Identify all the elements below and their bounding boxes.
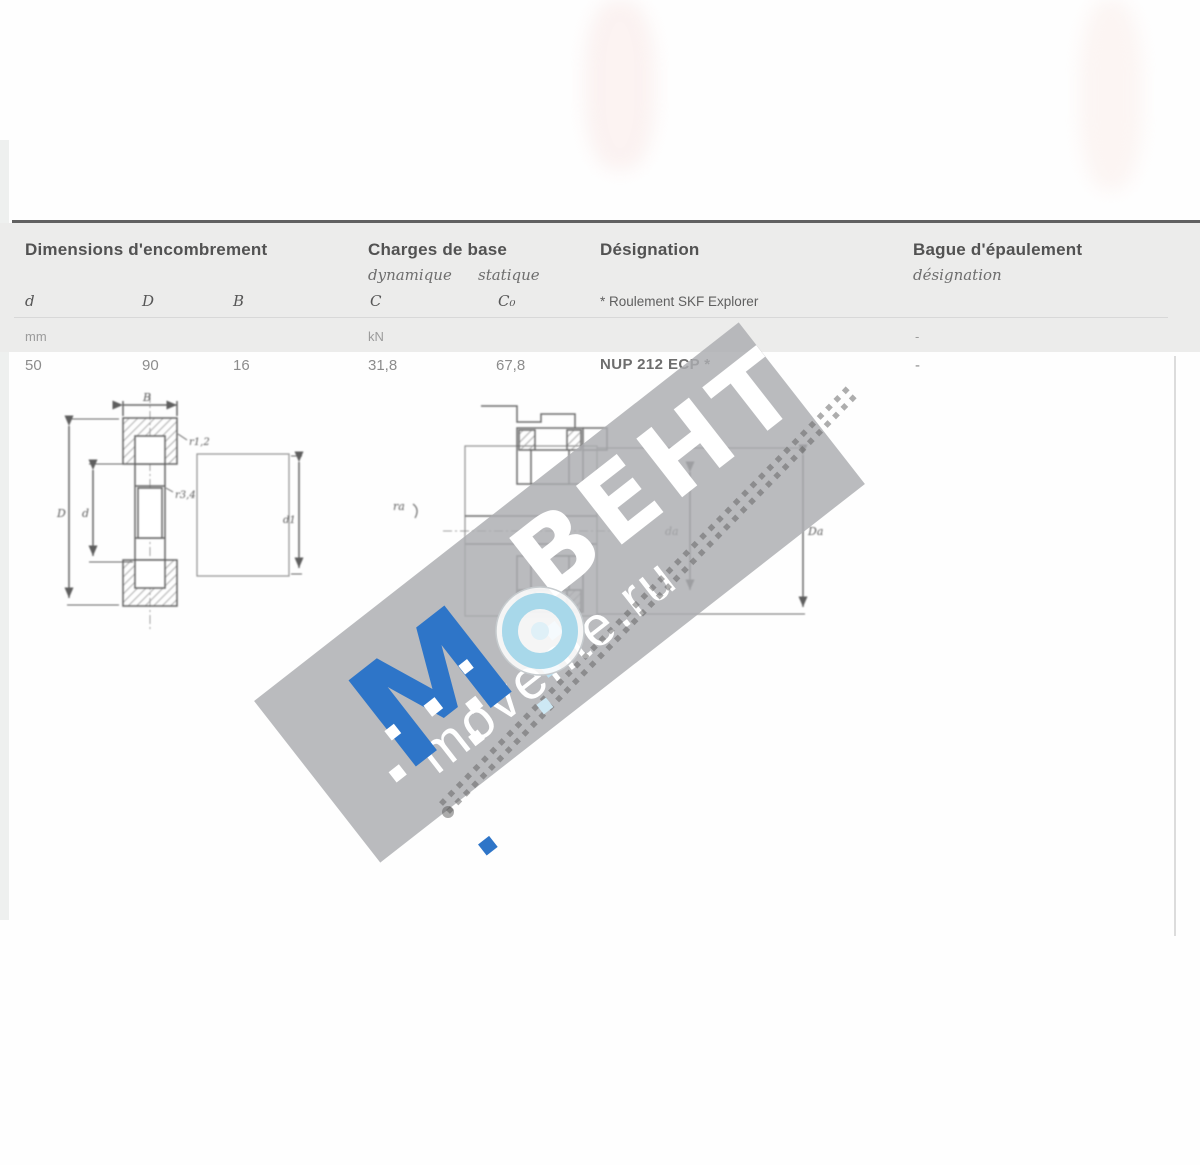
header-separator-line xyxy=(14,317,1168,318)
scan-smudge xyxy=(1080,0,1142,190)
col-sub-static: statique xyxy=(478,266,540,284)
col-title-loads: Charges de base xyxy=(368,240,507,260)
symbol-B: B xyxy=(233,292,244,310)
unit-dash: - xyxy=(915,329,919,344)
dim-label-B: B xyxy=(142,391,151,404)
cell-B: 16 xyxy=(233,357,250,374)
col-title-dimensions: Dimensions d'encombrement xyxy=(25,240,267,260)
cell-D: 90 xyxy=(142,357,159,374)
symbol-D: D xyxy=(142,292,154,310)
col-title-abutment: Bague d'épaulement xyxy=(913,240,1082,260)
scan-smudge xyxy=(585,0,655,170)
table-right-border xyxy=(1174,356,1176,936)
symbol-d: d xyxy=(25,292,35,310)
unit-kn: kN xyxy=(368,329,384,344)
bearing-cross-section-drawing: B r1,2 r3,4 D d d1 xyxy=(55,390,305,635)
dim-label-ra: ra xyxy=(393,500,405,513)
designation-footnote: * Roulement SKF Explorer xyxy=(600,294,758,309)
dim-label-r12: r1,2 xyxy=(189,437,210,448)
col-sub-dynamic: dynamique xyxy=(368,266,452,284)
dim-label-D: D xyxy=(56,507,66,520)
cell-abutment: - xyxy=(915,357,920,374)
dim-label-r34: r3,4 xyxy=(175,490,196,501)
col-title-designation: Désignation xyxy=(600,240,700,260)
dim-label-d1: d1 xyxy=(283,515,296,526)
cell-C: 31,8 xyxy=(368,357,397,374)
unit-mm: mm xyxy=(25,329,47,344)
symbol-C: C xyxy=(370,292,381,310)
cell-d: 50 xyxy=(25,357,42,374)
col-sub-abutment: désignation xyxy=(913,266,1002,284)
dim-label-d: d xyxy=(82,507,89,520)
catalog-page: { "table": { "header": { "dimensions_tit… xyxy=(0,0,1200,1165)
cell-C0: 67,8 xyxy=(496,357,525,374)
symbol-C0: C₀ xyxy=(498,292,516,310)
